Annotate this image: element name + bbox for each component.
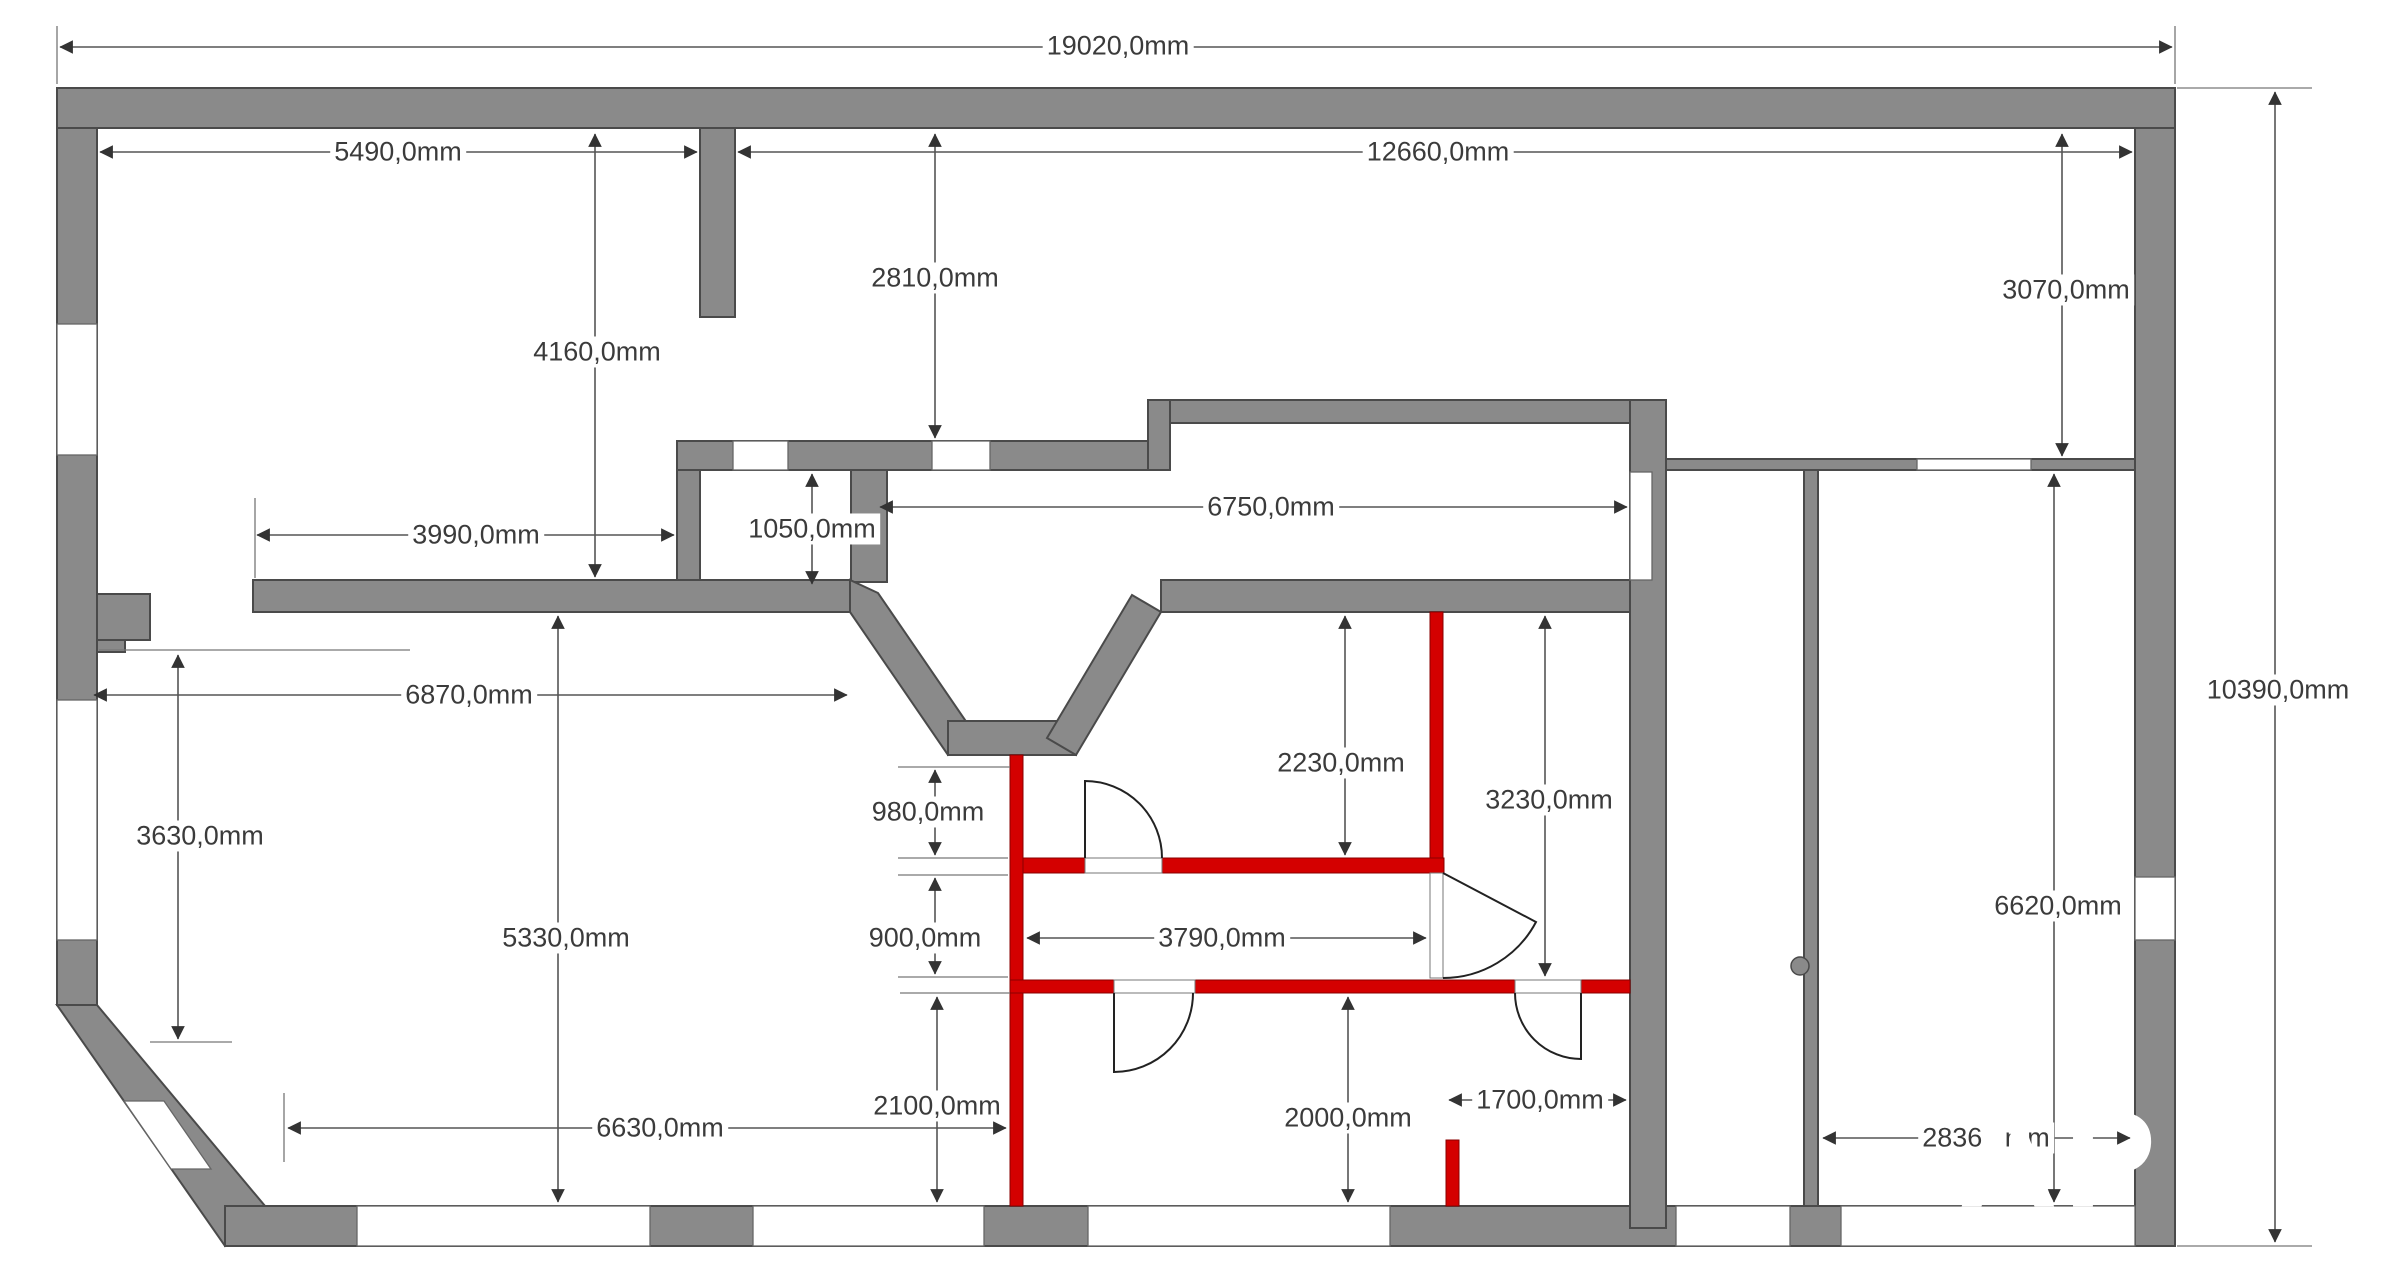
- dim-label-left-wall-height: 3630,0mm: [132, 820, 268, 851]
- dim-label-top-right-span: 12660,0mm: [1363, 136, 1514, 167]
- door-knob-icon: [1791, 957, 1809, 975]
- window-closet-1: [733, 441, 788, 470]
- window-right-horizontal: [1917, 459, 2031, 470]
- opening-central-wall: [1630, 472, 1652, 580]
- wall-top: [57, 88, 2175, 128]
- dim-label-overall-width: 19020,0mm: [1043, 30, 1194, 61]
- dim-label-lower-right-height: 2000,0mm: [1280, 1102, 1416, 1133]
- dim-label-mid-room-width: 6750,0mm: [1203, 491, 1339, 522]
- dim-label-bay-to-red: 980,0mm: [868, 796, 989, 827]
- dim-label-right-room-height: 6620,0mm: [1990, 890, 2126, 921]
- wall-right: [2135, 128, 2175, 1246]
- dim-label-top-left-room: 5490,0mm: [330, 136, 466, 167]
- dim-label-lower-left-height: 2100,0mm: [869, 1090, 1005, 1121]
- window-right-wall: [2135, 877, 2175, 940]
- door-arc-lower-right: [1515, 993, 1581, 1059]
- window-bottom-1: [357, 1206, 650, 1246]
- dim-label-overall-height: 10390,0mm: [2203, 674, 2354, 705]
- dim-label-corridor-width: 3790,0mm: [1154, 922, 1290, 953]
- window-closet-2: [932, 441, 990, 470]
- watermark-logo-small: T L: [2017, 1214, 2144, 1253]
- door-gap-upper: [1085, 858, 1162, 873]
- door-arc-right-room: [1443, 873, 1536, 978]
- door-gap-lower-right: [1515, 980, 1581, 993]
- dim-label-redroom-top: 2230,0mm: [1273, 747, 1409, 778]
- red-wall-stub: [1446, 1140, 1459, 1206]
- dim-label-right-top-depth: 3070,0mm: [1998, 274, 2134, 305]
- extension-lines: [57, 26, 2312, 1246]
- door-gap-right-vertical: [1430, 873, 1443, 978]
- wall-bay-right-diagonal: [1047, 595, 1161, 755]
- wall-left-pier: [97, 594, 150, 640]
- dim-label-living-height: 5330,0mm: [498, 922, 634, 953]
- dim-label-left-room-depth: 4160,0mm: [529, 336, 665, 367]
- window-bottom-3: [1088, 1206, 1390, 1246]
- red-wall-vertical-right: [1430, 612, 1443, 858]
- dimension-lines: [60, 47, 2275, 1242]
- door-arc-upper-room: [1085, 781, 1162, 858]
- dim-label-closet-height: 1050,0mm: [744, 513, 880, 544]
- wall-midroom-bottom: [1166, 400, 1630, 423]
- window-bottom-4: [1676, 1206, 1790, 1246]
- dim-label-mid-left-width: 3990,0mm: [408, 519, 544, 550]
- wall-right-section-horizontal: [1666, 459, 2135, 470]
- wall-right-section-vertical: [1804, 470, 1818, 1206]
- wall-stub-top-left: [700, 128, 735, 317]
- window-left-lower: [57, 700, 97, 940]
- dim-label-bottom-left-width: 6630,0mm: [592, 1112, 728, 1143]
- wall-midroom-step: [1148, 400, 1170, 470]
- floor-plan: 19020,0mm 5490,0mm 12660,0mm 2810,0mm 41…: [0, 0, 2390, 1280]
- dim-label-left-room-width: 6870,0mm: [401, 679, 537, 710]
- wall-long-horizontal: [253, 580, 850, 612]
- dim-label-niche-width: 1700,0mm: [1472, 1084, 1608, 1115]
- door-gap-lower-left: [1114, 980, 1195, 993]
- wall-redroom-top: [1161, 580, 1632, 612]
- door-arc-lower-left: [1114, 993, 1193, 1072]
- dim-label-redroom-right: 3230,0mm: [1481, 784, 1617, 815]
- dim-label-corridor-height: 900,0mm: [865, 922, 986, 953]
- wall-closet-left: [677, 470, 700, 582]
- dim-label-hall-depth: 2810,0mm: [867, 262, 1003, 293]
- window-left-upper: [57, 324, 97, 455]
- window-bottom-2: [753, 1206, 984, 1246]
- interior-walls: [253, 128, 2135, 1228]
